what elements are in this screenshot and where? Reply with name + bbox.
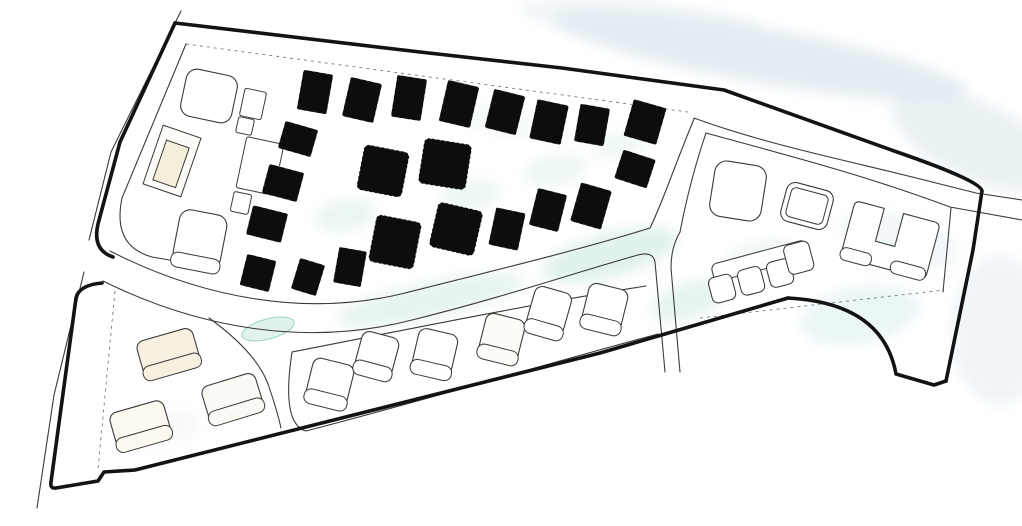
building-light-body xyxy=(179,67,240,125)
site-plan xyxy=(0,0,1022,526)
building-light xyxy=(708,159,768,222)
building-dark xyxy=(368,214,422,270)
amenity-connector-block xyxy=(230,191,252,214)
building-dark xyxy=(418,138,473,191)
site-plan-canvas xyxy=(0,0,1022,526)
building-dark xyxy=(356,144,410,198)
amenity-connector-block xyxy=(236,117,255,136)
building-light-body xyxy=(708,159,768,222)
building-light xyxy=(179,67,240,125)
